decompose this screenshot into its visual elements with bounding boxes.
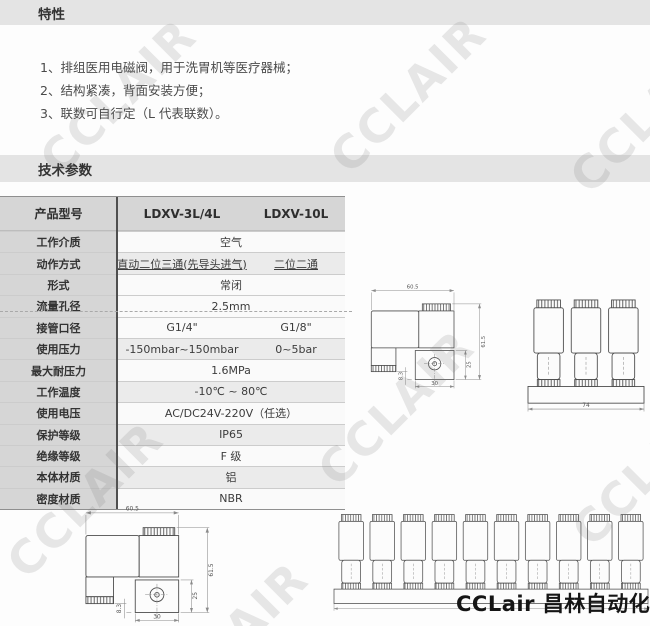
table-header-row: 产品型号 LDXV-3L/4L LDXV-10L xyxy=(0,197,345,231)
row-label: 工作介质 xyxy=(0,232,117,252)
row-value: IP65 xyxy=(117,425,345,445)
header-model-2: LDXV-10L xyxy=(247,207,345,221)
table-row: 工作介质 空气 xyxy=(0,231,345,252)
table-row: 工作温度 -10℃ ~ 80℃ xyxy=(0,381,345,402)
row-value: 1.6MPa xyxy=(117,360,345,380)
row-value-2: G1/8" xyxy=(247,318,345,338)
row-value: 常闭 xyxy=(117,275,345,295)
row-value: 2.5mm xyxy=(117,296,345,316)
header-product-model: 产品型号 xyxy=(0,205,117,222)
table-column-divider xyxy=(116,197,118,509)
row-value: -10℃ ~ 80℃ xyxy=(117,382,345,402)
table-row: 接管口径 G1/4" G1/8" xyxy=(0,317,345,338)
table-row: 流量孔径 2.5mm xyxy=(0,295,345,316)
row-label: 绝缘等级 xyxy=(0,446,117,466)
features-section-bar: 特性 xyxy=(0,0,650,25)
single-valve-side-drawing-large: 60.5 61.5 25 30 8.3 xyxy=(80,502,228,625)
row-value-2: 0~5bar xyxy=(247,339,345,359)
dimension-label: 30 xyxy=(153,614,161,620)
row-value: AC/DC24V-220V（任选） xyxy=(117,403,345,423)
table-row: 最大耐压力 1.6MPa xyxy=(0,359,345,380)
row-value-1: -150mbar~150mbar xyxy=(117,339,247,359)
brand-logo-chinese: 昌林自动化 xyxy=(543,592,650,616)
dimension-label: 74 xyxy=(582,403,590,409)
single-valve-side-drawing: 60.5 61.5 25 30 8.3 xyxy=(366,281,498,391)
table-row: 使用压力 -150mbar~150mbar 0~5bar xyxy=(0,338,345,359)
row-label: 使用电压 xyxy=(0,403,117,423)
row-label: 保护等级 xyxy=(0,425,117,445)
row-label: 本体材质 xyxy=(0,467,117,487)
dimension-label: 8.3 xyxy=(117,604,123,614)
dimension-label: 8.3 xyxy=(399,372,405,380)
row-label: 使用压力 xyxy=(0,339,117,359)
feature-item: 1、排组医用电磁阀，用于洗胃机等医疗器械； xyxy=(40,56,298,79)
specs-section-bar: 技术参数 xyxy=(0,155,650,182)
table-row: 本体材质 铝 xyxy=(0,466,345,487)
valve-units xyxy=(534,300,638,387)
dimension-label: 60.5 xyxy=(126,506,139,512)
page-break-dashed-line xyxy=(0,311,352,312)
dimension-label: 60.5 xyxy=(407,284,419,290)
valve-units xyxy=(339,515,643,590)
table-row: 保护等级 IP65 xyxy=(0,424,345,445)
row-value: 铝 xyxy=(117,467,345,487)
table-row: 动作方式 直动二位三通(先导头进气) 二位二通 xyxy=(0,252,345,273)
brand-logo-latin: CCLair xyxy=(456,592,535,616)
manifold-3-drawing: 74 xyxy=(528,297,644,413)
dimension-label: 30 xyxy=(431,381,438,387)
datasheet-page: 特性 1、排组医用电磁阀，用于洗胃机等医疗器械； 2、结构紧凑，背面安装方便； … xyxy=(0,0,650,626)
feature-item: 3、联数可自行定（L 代表联数）。 xyxy=(40,102,298,125)
table-row: 使用电压 AC/DC24V-220V（任选） xyxy=(0,402,345,423)
dimension-label: 61.5 xyxy=(209,563,215,576)
brand-logo: CCLair 昌林自动化 xyxy=(456,588,650,618)
specs-section-title: 技术参数 xyxy=(38,155,92,182)
dimension-label: 25 xyxy=(193,592,199,600)
row-value: 空气 xyxy=(117,232,345,252)
row-label: 流量孔径 xyxy=(0,296,117,316)
dimension-label: 61.5 xyxy=(481,336,487,348)
row-label: 工作温度 xyxy=(0,382,117,402)
feature-item: 2、结构紧凑，背面安装方便； xyxy=(40,79,298,102)
row-value-1: 直动二位三通(先导头进气) xyxy=(117,253,247,273)
spec-table: 产品型号 LDXV-3L/4L LDXV-10L 工作介质 空气 动作方式 直动… xyxy=(0,196,345,510)
dimension-label: 25 xyxy=(466,361,472,368)
row-label: 形式 xyxy=(0,275,117,295)
row-label: 接管口径 xyxy=(0,318,117,338)
row-label: 动作方式 xyxy=(0,253,117,273)
header-model-1: LDXV-3L/4L xyxy=(117,207,247,221)
table-row: 绝缘等级 F 级 xyxy=(0,445,345,466)
features-section-title: 特性 xyxy=(38,0,65,25)
row-value-2: 二位二通 xyxy=(247,253,345,273)
row-label: 最大耐压力 xyxy=(0,360,117,380)
table-row: 形式 常闭 xyxy=(0,274,345,295)
row-value-1: G1/4" xyxy=(117,318,247,338)
feature-list: 1、排组医用电磁阀，用于洗胃机等医疗器械； 2、结构紧凑，背面安装方便； 3、联… xyxy=(40,56,298,125)
row-value: F 级 xyxy=(117,446,345,466)
